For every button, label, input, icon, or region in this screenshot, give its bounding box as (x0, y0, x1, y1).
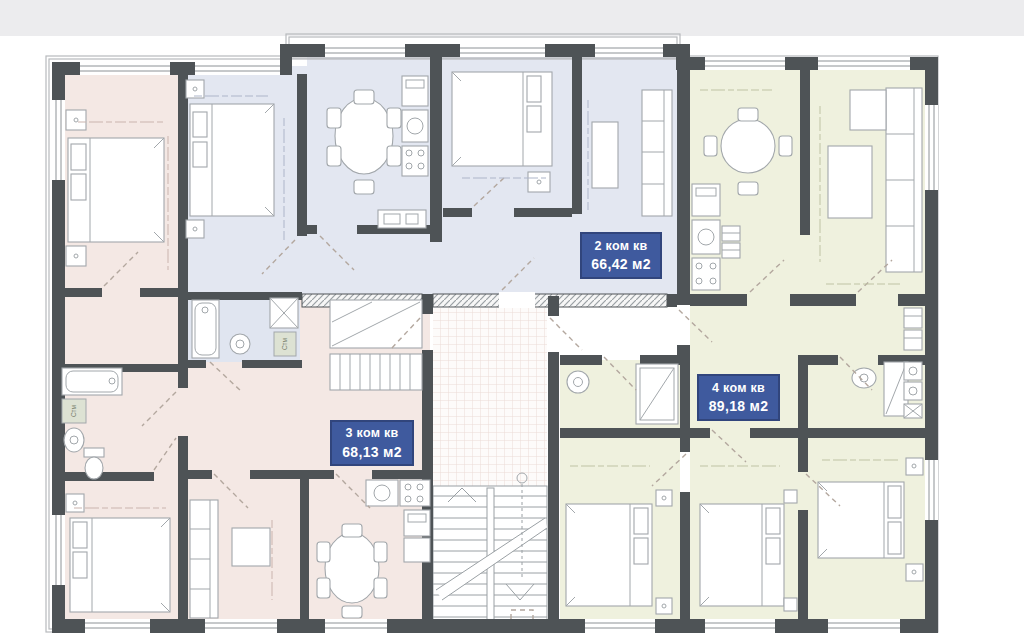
washing-machine-icon: Стм (274, 332, 296, 356)
sink-icon (567, 371, 589, 393)
shower-icon (636, 364, 678, 424)
vent-shaft-icon (904, 404, 922, 418)
washer-label: Стм (281, 337, 288, 350)
sink-icon (230, 334, 250, 354)
bathtub-icon (192, 300, 219, 358)
apartment-3-label: 3 ком кв 68,13 м2 (330, 420, 414, 466)
tv-stand-icon (378, 210, 426, 228)
double-bed-icon (700, 490, 797, 611)
floorplan-image: Стм Стм (0, 0, 1024, 640)
double-bed-icon (186, 80, 274, 238)
stairs-icon (433, 473, 547, 632)
kitchen-icon (402, 76, 428, 176)
apartment-3-rooms: 3 ком кв (345, 425, 398, 443)
apartment-2-rooms: 2 ком кв (594, 238, 647, 256)
corridor-floor (433, 308, 547, 486)
apartment-4-rooms: 4 ком кв (712, 380, 765, 398)
bathtub-icon (62, 368, 122, 395)
apartment-2-area: 66,42 м2 (591, 255, 650, 273)
vent-shaft-icon (270, 298, 298, 328)
washer-label: Стм (70, 404, 77, 417)
apartment-3-area: 68,13 м2 (342, 443, 401, 461)
apartment-2-label: 2 ком кв 66,42 м2 (580, 232, 662, 279)
sink-icon (852, 368, 876, 388)
floorplan-drawing: Стм Стм (0, 0, 1024, 640)
apartment-4-label: 4 ком кв 89,18 м2 (697, 374, 780, 421)
wardrobe-icon (330, 300, 422, 390)
washing-machine-icon: Стм (62, 399, 86, 423)
apartment-4-area: 89,18 м2 (709, 397, 768, 415)
sink-icon (64, 428, 84, 452)
toilet-icon (84, 448, 104, 479)
